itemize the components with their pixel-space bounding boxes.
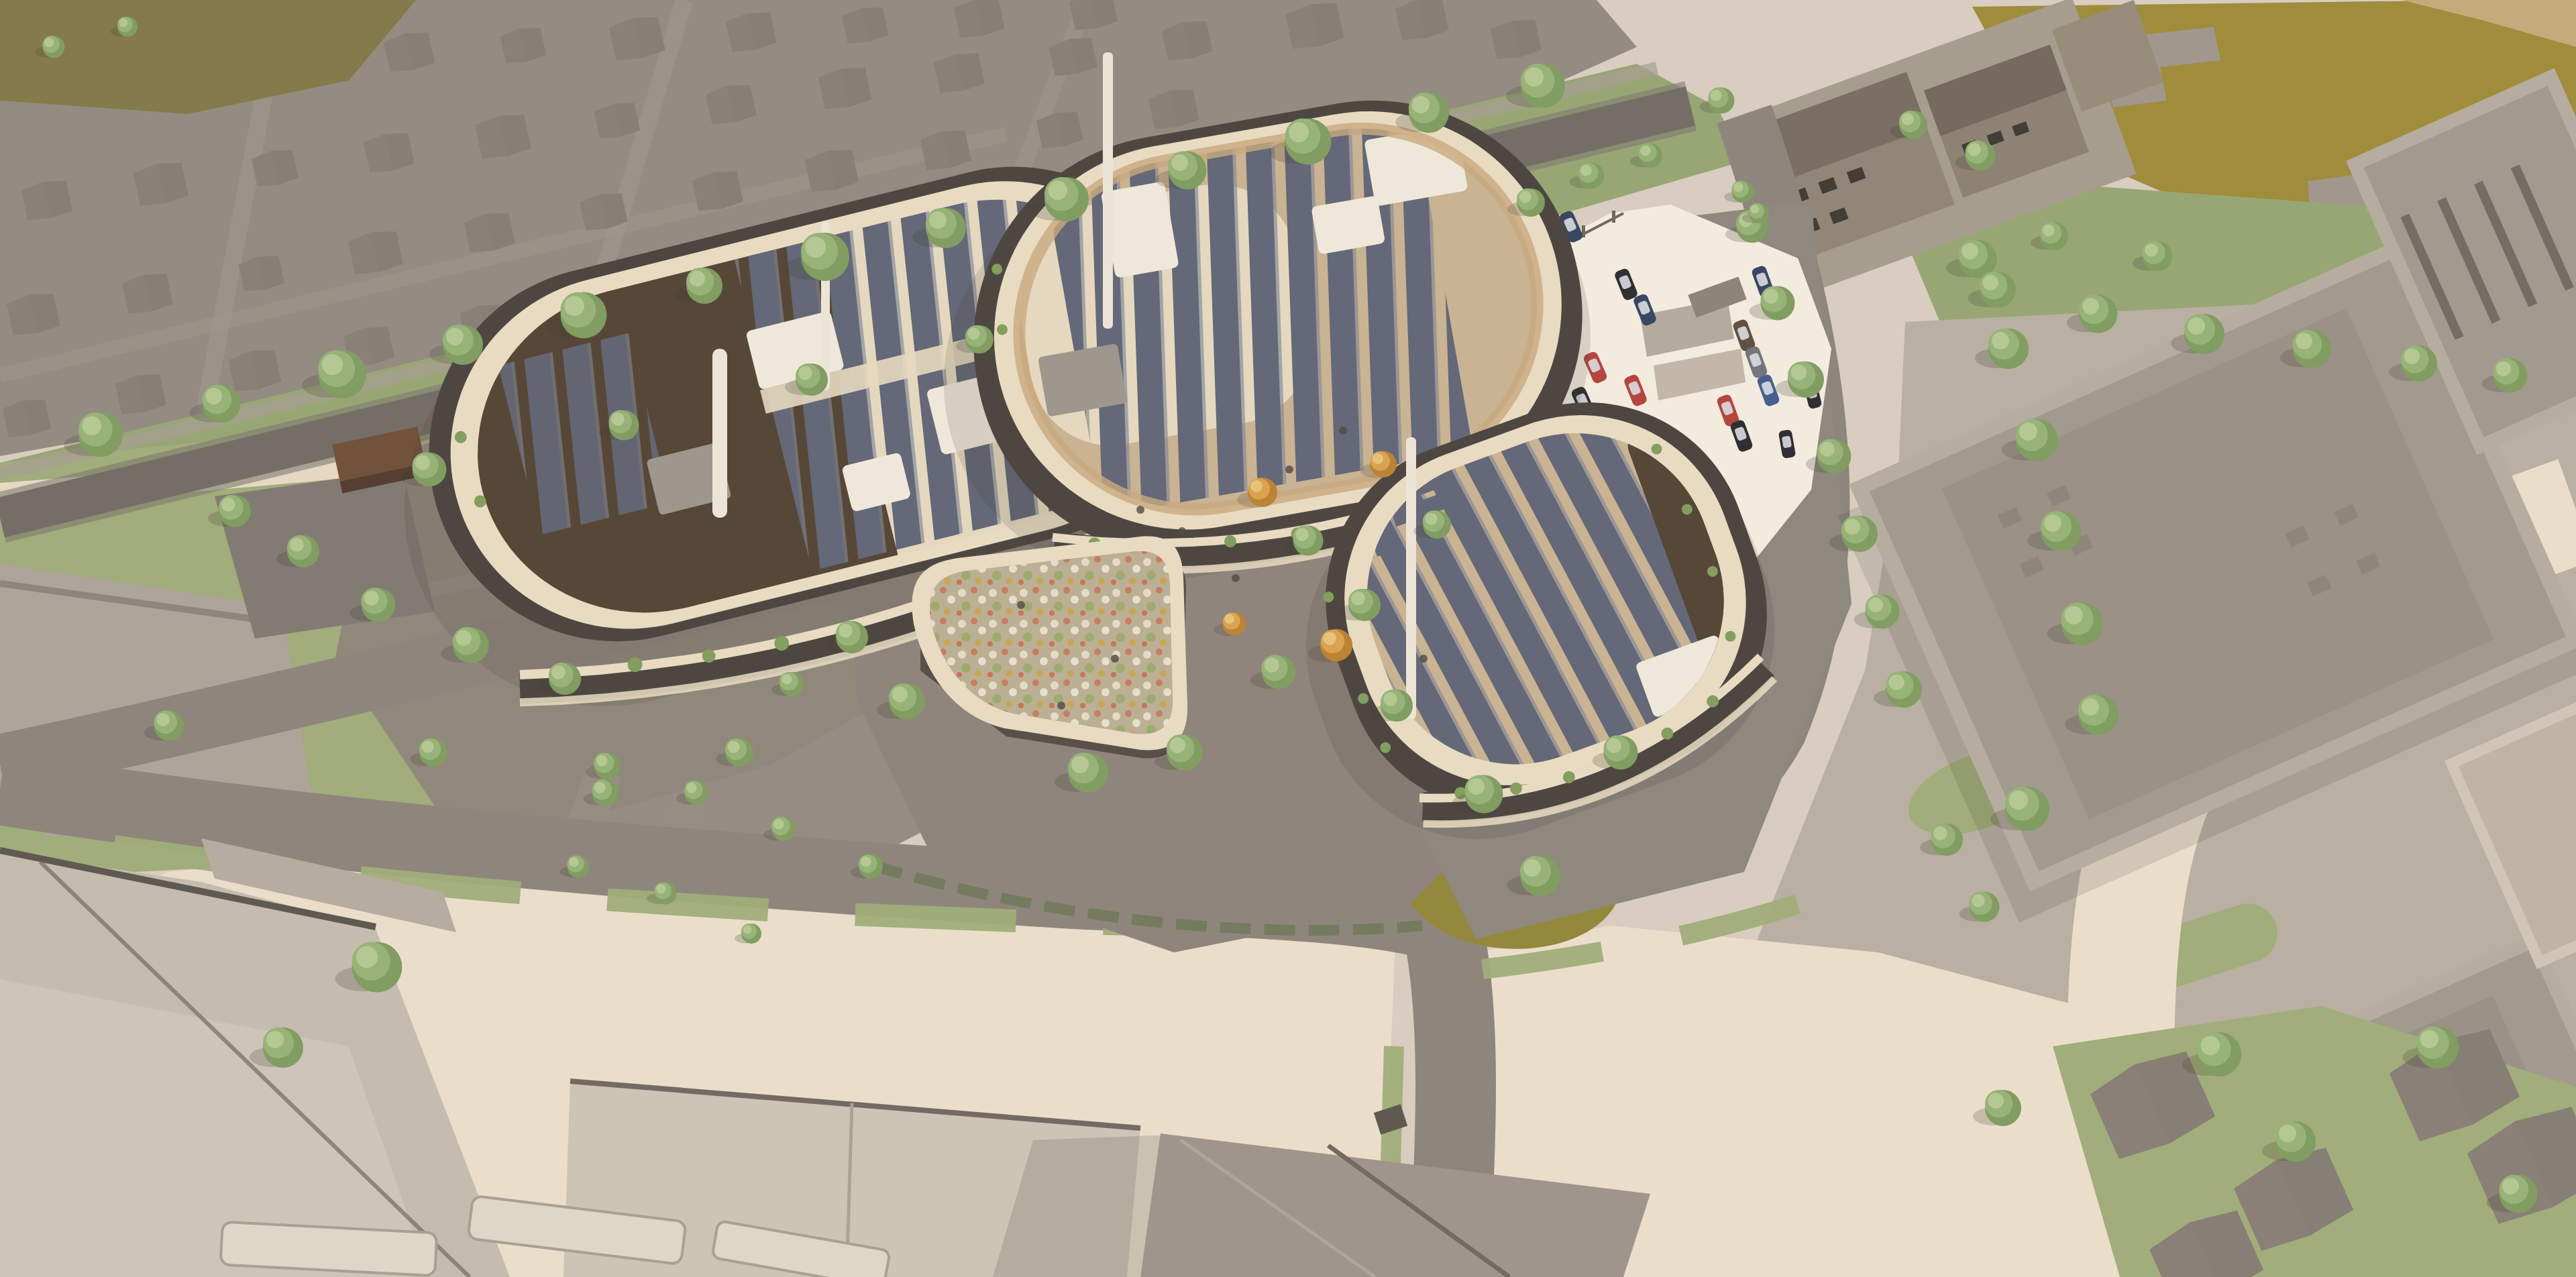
aerial-render: Daylight aerial 3D render of a proposed … (0, 0, 2576, 1277)
render-canvas (0, 0, 2576, 1277)
light-overlay (0, 0, 2576, 1277)
